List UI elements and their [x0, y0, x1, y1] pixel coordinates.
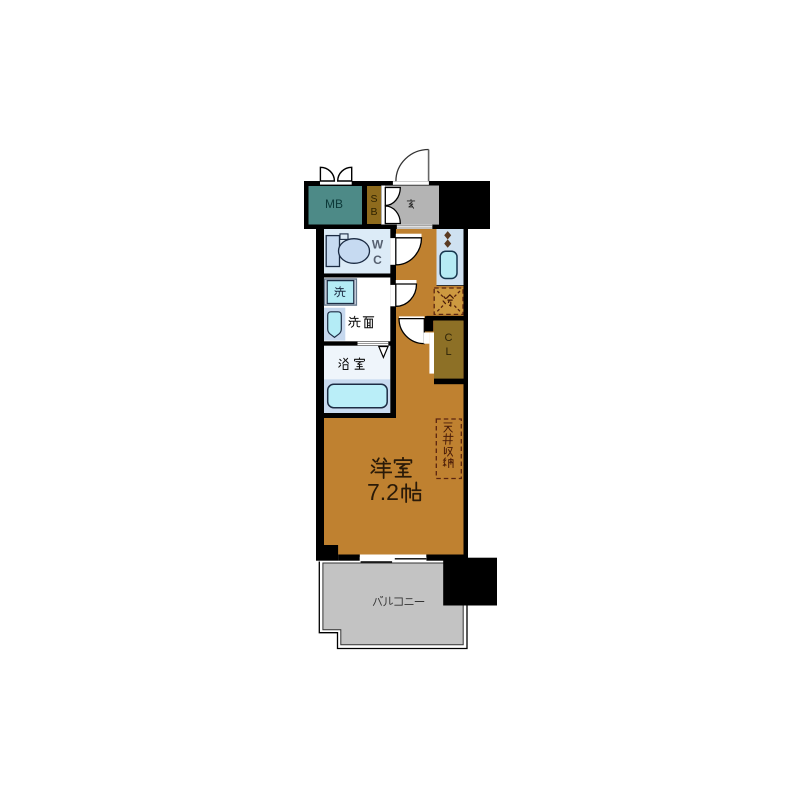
- svg-text:MB: MB: [325, 197, 343, 211]
- svg-text:7.2: 7.2: [367, 479, 399, 505]
- svg-text:L: L: [445, 346, 451, 358]
- svg-text:S: S: [370, 193, 377, 205]
- svg-text:B: B: [370, 206, 377, 218]
- svg-text:C: C: [445, 332, 453, 344]
- svg-text:W: W: [372, 238, 384, 252]
- svg-text:C: C: [373, 253, 382, 267]
